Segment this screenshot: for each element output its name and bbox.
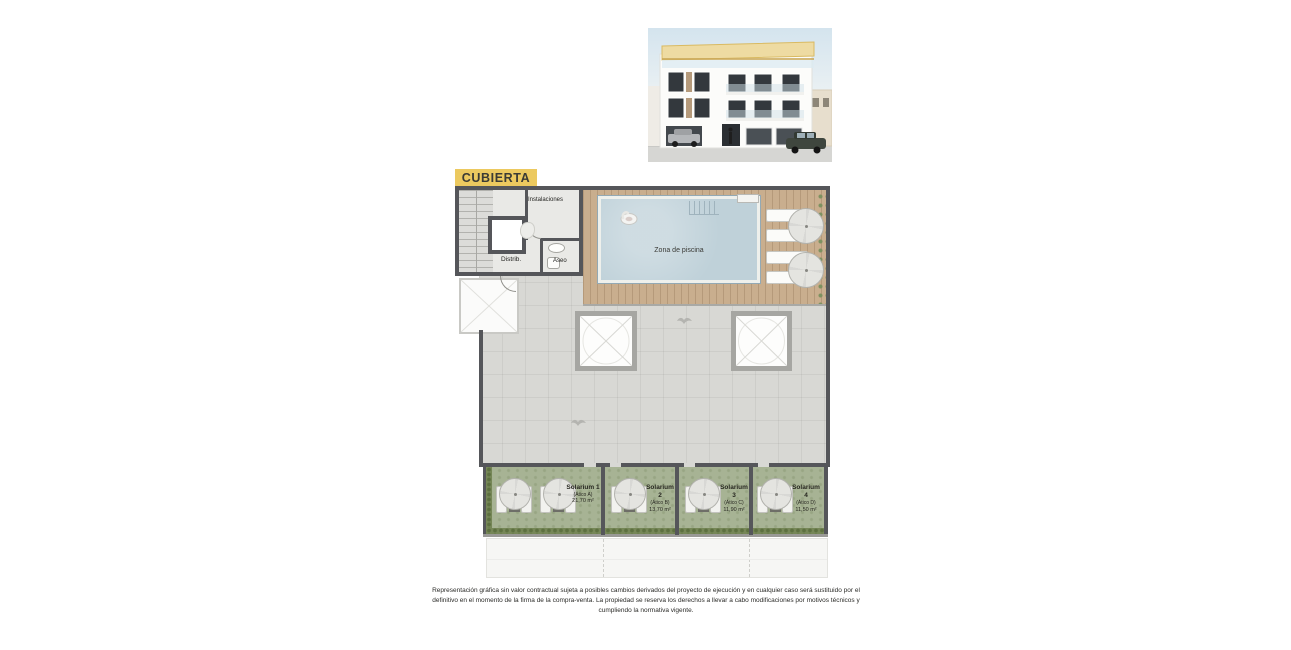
person-silhouette xyxy=(729,132,732,144)
swimming-pool: Zona de piscina xyxy=(598,196,760,283)
wall xyxy=(826,186,830,467)
umbrella-icon xyxy=(760,478,792,510)
stair-divider xyxy=(476,190,477,272)
legal-disclaimer: Representación gráfica sin valor contrac… xyxy=(421,586,871,615)
wall xyxy=(540,238,579,241)
plant-strip xyxy=(486,467,492,534)
bird-icon xyxy=(570,416,587,430)
door-gap xyxy=(684,463,695,467)
door-gap xyxy=(610,463,621,467)
room-label-aseo: Aseo xyxy=(553,258,567,264)
ghost-line xyxy=(487,559,827,561)
balcony-slab xyxy=(726,92,804,95)
umbrella-icon xyxy=(614,478,646,510)
umbrella-icon xyxy=(788,252,824,288)
wall xyxy=(483,534,828,537)
umbrella-icon xyxy=(688,478,720,510)
roof-glass-railing xyxy=(662,60,814,68)
bird-icon xyxy=(676,314,693,328)
solarium-lounger-group xyxy=(757,480,793,514)
skylight xyxy=(731,311,792,371)
ghost-roof-outline xyxy=(486,538,828,578)
wood-accent xyxy=(686,72,692,92)
balcony-slab xyxy=(726,118,804,121)
umbrella-icon xyxy=(788,208,824,244)
wall xyxy=(579,186,583,276)
wall xyxy=(455,272,583,276)
building-facade-render xyxy=(648,28,832,162)
building-facade-illustration xyxy=(648,28,832,162)
solarium-2-label: Solarium 2 (Ático B) 13,70 m² xyxy=(644,484,676,513)
wall xyxy=(455,186,459,276)
wall xyxy=(824,463,828,537)
solarium-4-label: Solarium 4 (Ático D) 11,50 m² xyxy=(790,484,822,513)
pool-float-icon xyxy=(619,209,639,225)
ghost-divider xyxy=(603,539,605,577)
solarium-lounger-group xyxy=(685,480,721,514)
wall xyxy=(479,330,483,467)
umbrella-icon xyxy=(499,478,531,510)
door-gap xyxy=(758,463,769,467)
door-gap xyxy=(584,463,596,467)
skylight xyxy=(575,311,637,371)
deck-edge xyxy=(583,304,826,306)
room-label-distrib: Distrib. xyxy=(501,256,521,263)
solarium-3-label: Solarium 3 (Ático C) 11,90 m² xyxy=(718,484,750,513)
wall xyxy=(455,186,830,190)
room-label-instalaciones: Instalaciones xyxy=(528,197,563,203)
wall xyxy=(483,463,826,467)
brochure-page: CUBIERTA Zona de piscina xyxy=(0,0,1291,650)
deck-lounger-group xyxy=(766,250,824,286)
sink-fixture xyxy=(548,243,565,253)
wall xyxy=(483,463,486,537)
deck-lounger-group xyxy=(766,208,824,244)
pool-steps xyxy=(689,201,719,215)
solarium-1-label: Solarium 1 (Ático A) 21,70 m² xyxy=(564,484,602,505)
ghost-divider xyxy=(749,539,751,577)
solarium-lounger-group xyxy=(496,480,532,514)
solarium-lounger-group xyxy=(611,480,647,514)
pool-area-label: Zona de piscina xyxy=(601,247,757,254)
wall xyxy=(540,241,543,272)
pool-bench xyxy=(737,194,759,203)
